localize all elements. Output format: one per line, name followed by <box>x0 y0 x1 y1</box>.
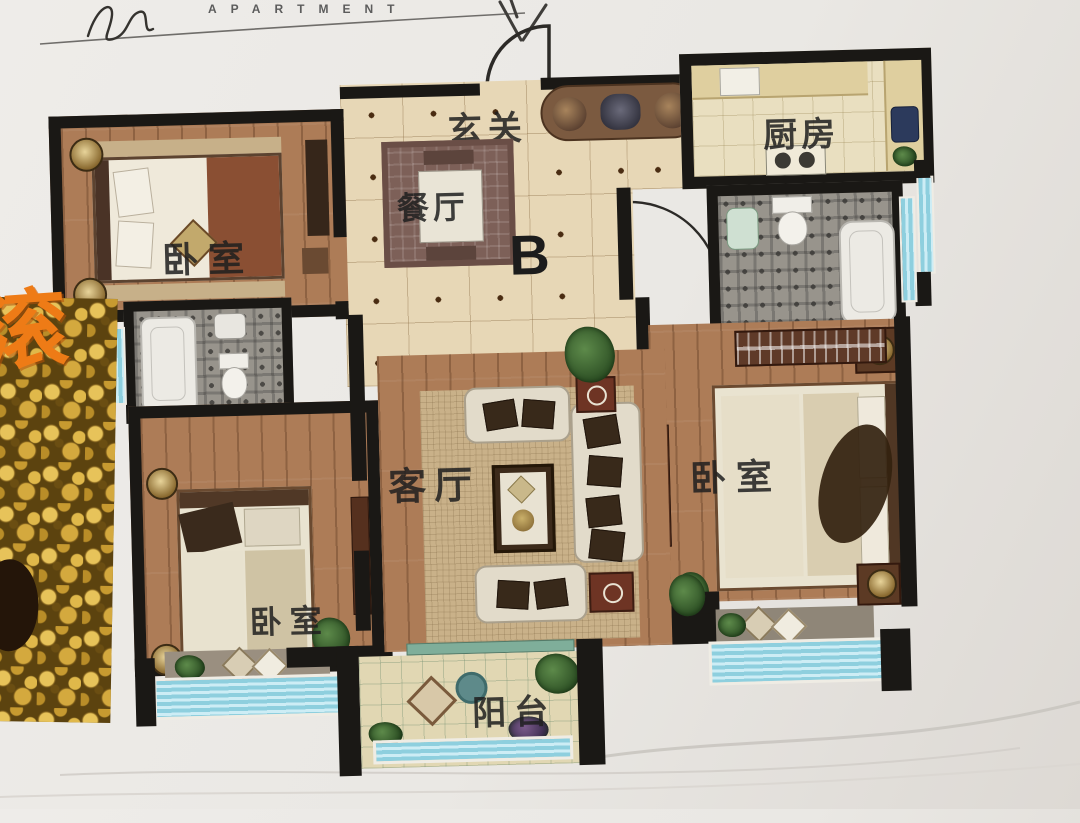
sink <box>726 207 759 250</box>
wall-segment <box>135 658 157 727</box>
room-label-balcony: 阳台 <box>471 684 556 735</box>
wall-segment <box>354 551 371 631</box>
kitchen-counter-top <box>691 61 868 100</box>
kitchen-counter-right <box>883 60 924 171</box>
toilet <box>217 353 250 400</box>
room-bathroom-right <box>706 180 906 335</box>
wall-segment <box>914 160 930 178</box>
bathtub <box>140 316 198 413</box>
toilet <box>772 196 811 247</box>
bed-headboard <box>179 489 308 508</box>
balcony-glazing <box>373 735 574 764</box>
window-bath-right <box>899 196 918 302</box>
sofa-pillow <box>496 580 530 610</box>
sofa-pillow <box>587 455 623 488</box>
pillow <box>113 167 155 217</box>
bathtub-inner <box>150 326 186 401</box>
sofa-pillow <box>585 495 622 529</box>
bed-quilt <box>183 551 246 653</box>
sofa-pillow <box>482 399 518 432</box>
room-bedroom-top-left: 卧室 <box>48 109 348 324</box>
bay-window-left <box>153 673 344 720</box>
fridge <box>719 67 760 96</box>
unit-letter: B <box>508 222 550 288</box>
wall-segment <box>616 188 633 300</box>
room-label-dining: 餐厅 <box>396 182 469 230</box>
window-kitchen-right <box>916 176 936 274</box>
sofa-pillow <box>521 399 555 429</box>
console-table <box>540 82 701 142</box>
end-table <box>589 572 635 613</box>
room-label-bedroom-top-left: 卧室 <box>161 229 254 283</box>
room-bedroom-bottom-left: 卧室 <box>128 400 385 676</box>
room-label-bedroom-right: 卧室 <box>689 448 782 502</box>
wardrobe-right <box>734 327 887 367</box>
pillow <box>115 220 154 268</box>
bed-headboard <box>95 160 112 280</box>
loveseat-top <box>464 385 571 444</box>
plant <box>175 655 206 680</box>
wall-segment <box>576 638 605 765</box>
coffee-table <box>492 464 556 554</box>
side-table <box>302 247 329 274</box>
bay-window-right <box>708 637 885 686</box>
decor-bowl <box>552 97 587 132</box>
decor-centerpiece <box>600 93 641 130</box>
sofa-long <box>570 401 644 563</box>
plant <box>718 613 747 638</box>
toilet-bowl <box>221 367 248 400</box>
pillow <box>244 507 301 546</box>
bathtub-inner <box>849 230 885 313</box>
room-label-bedroom-bottom-left: 卧室 <box>249 596 330 644</box>
dark-figure <box>0 559 39 652</box>
sofa-pillow <box>533 578 568 610</box>
room-label-kitchen: 厨房 <box>762 106 839 157</box>
room-kitchen: 厨房 <box>679 48 934 190</box>
room-living: 客厅 <box>377 349 673 652</box>
pillow-dark <box>178 502 242 556</box>
kitchen-sink <box>890 106 919 143</box>
dining-chair <box>426 246 476 261</box>
sofa-pillow <box>588 528 625 562</box>
loveseat-bottom <box>474 563 587 624</box>
dining-chair <box>423 150 473 165</box>
dresser <box>305 139 330 236</box>
overlay-character: 滚 <box>0 285 71 377</box>
photo-of-floor-plan: { "header": { "brand": "APARTMENT" }, "u… <box>0 0 1080 809</box>
balcony-chair <box>406 675 457 726</box>
sink <box>214 313 247 340</box>
floor-plan: 卧室 卧室 <box>0 0 1080 823</box>
wall-segment <box>880 628 912 691</box>
nightstand-lamp <box>146 468 179 501</box>
bathtub <box>838 220 897 325</box>
sofa-pillow <box>583 414 621 449</box>
room-label-living: 客厅 <box>387 454 480 511</box>
toilet-bowl <box>777 211 808 246</box>
room-balcony: 阳台 <box>359 651 584 769</box>
